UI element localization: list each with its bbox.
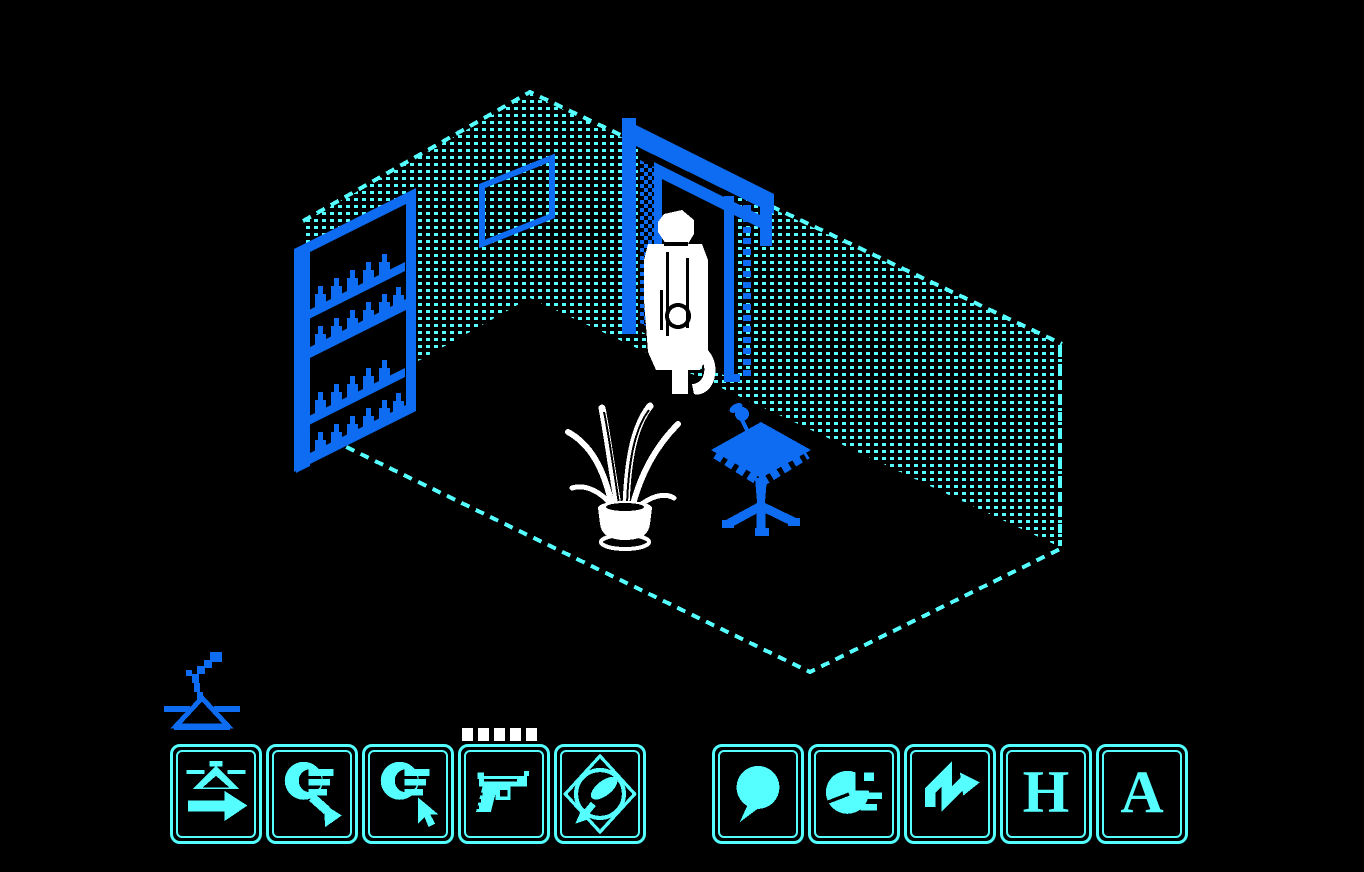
letter-a-icon: A (1120, 762, 1163, 822)
speech-bubble-icon (720, 751, 796, 837)
action-button[interactable] (904, 744, 996, 844)
verb-button-row: H A (712, 744, 1188, 844)
game-screen: H A (0, 0, 1364, 872)
drop-button[interactable] (266, 744, 358, 844)
zigzag-arrow-icon (912, 751, 988, 837)
potted-plant[interactable] (568, 406, 678, 549)
lamp-sprite (162, 650, 242, 730)
exit-button[interactable] (170, 744, 262, 844)
pistol-icon (466, 751, 542, 837)
ammo-dot (478, 728, 489, 741)
take-button[interactable] (362, 744, 454, 844)
ammo-dot (526, 728, 537, 741)
ammo-dots (462, 728, 537, 741)
ammo-dot (494, 728, 505, 741)
talk-button[interactable] (712, 744, 804, 844)
letter-h-icon: H (1023, 762, 1070, 822)
hand-drop-arrow-icon (274, 751, 350, 837)
ammo-dot (510, 728, 521, 741)
h-button[interactable]: H (1000, 744, 1092, 844)
a-button[interactable]: A (1096, 744, 1188, 844)
action-button-row (170, 744, 646, 844)
mirror-icon (562, 751, 638, 837)
eject-arrow-icon (178, 751, 254, 837)
room-scene (0, 0, 1364, 872)
clock-pie-icon (816, 751, 892, 837)
hand-pointer-icon (370, 751, 446, 837)
right-wall (530, 94, 1062, 548)
clock-button[interactable] (808, 744, 900, 844)
gun-button[interactable] (458, 744, 550, 844)
mirror-button[interactable] (554, 744, 646, 844)
ammo-dot (462, 728, 473, 741)
